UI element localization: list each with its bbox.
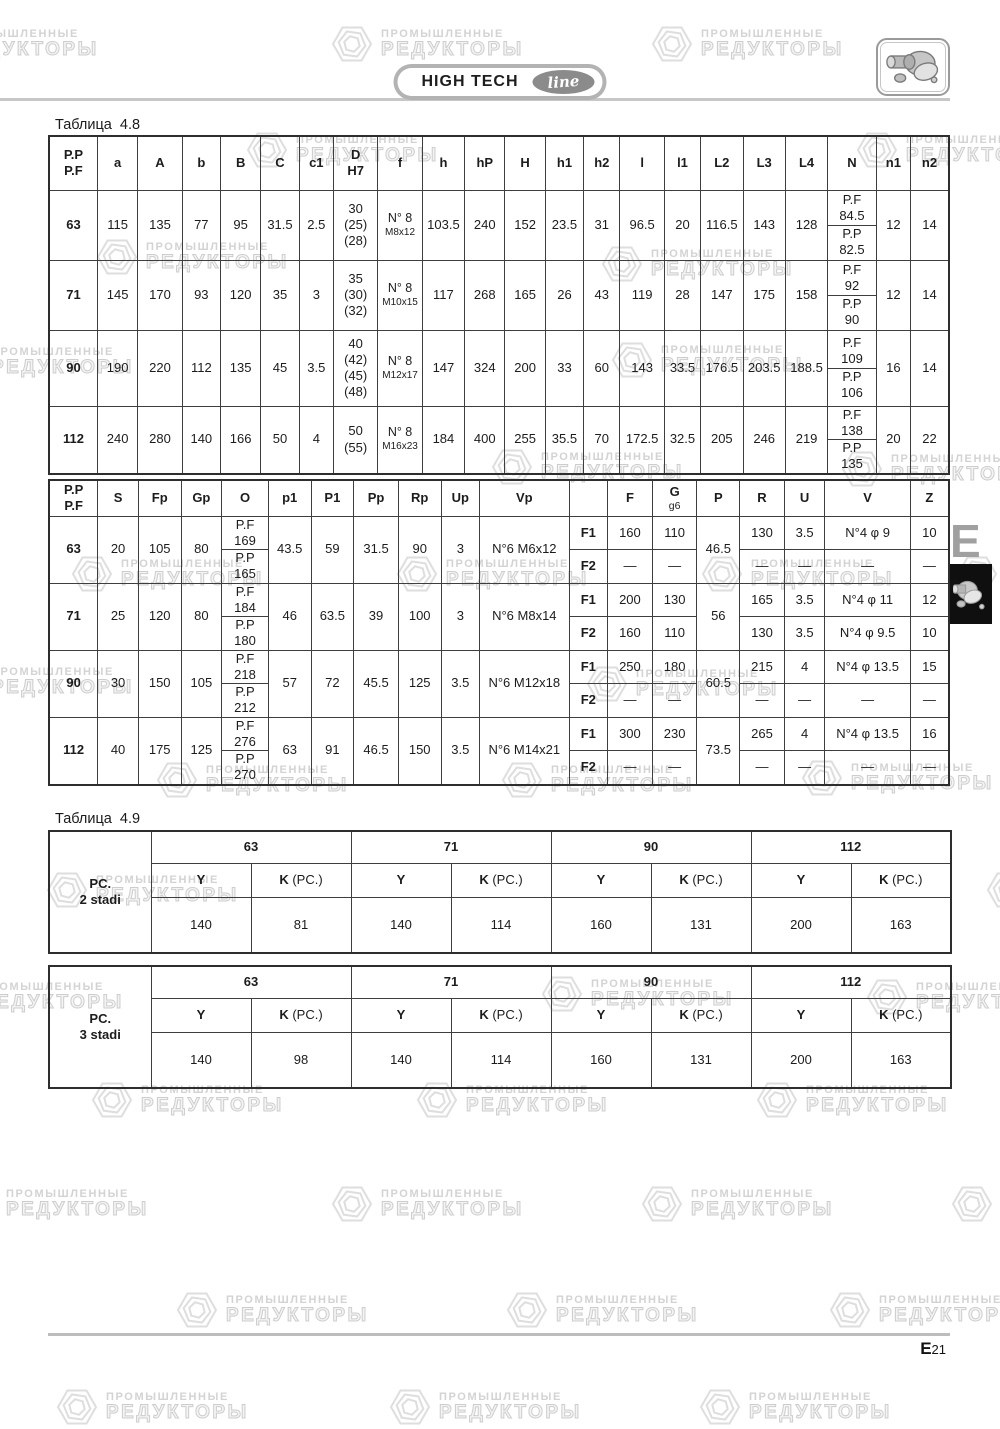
cell-P1: 63.5	[311, 583, 354, 650]
side-tab-letter: E	[950, 518, 981, 564]
stacked-top: P.F 138	[828, 407, 875, 441]
cell-L3: 143	[743, 190, 785, 260]
cell-P: 56	[697, 583, 740, 650]
column-header: R	[740, 480, 785, 516]
stacked-bottom: P.P 212	[222, 684, 268, 717]
cell-B: 135	[220, 330, 260, 406]
cell-R: —	[740, 751, 785, 785]
value-y: 140	[151, 1032, 251, 1088]
size-header-row: PC. 3 stadi637190112	[49, 966, 951, 998]
table-row-f1: 632010580P.F 169P.P 16543.55931.5903N°6 …	[49, 516, 949, 550]
cell-V: N°4 φ 13.5	[825, 650, 910, 684]
cell-l1: 28	[664, 260, 700, 330]
cell-Up: 3	[441, 583, 480, 650]
cell-L2: 205	[701, 406, 743, 474]
size-cell: 71	[49, 260, 97, 330]
k-note: (PC.)	[292, 872, 322, 887]
col-header-y: Y	[151, 998, 251, 1032]
column-header: N	[828, 136, 876, 190]
cell-n1: 16	[876, 330, 910, 406]
cell-Z: 15	[910, 650, 949, 684]
table-row: 711451709312035335 (30) (32)N° 8M10x1511…	[49, 260, 949, 330]
f-sub-value: M8x12	[380, 227, 419, 240]
cell-Pp: 39	[354, 583, 399, 650]
cell-P1: 91	[311, 717, 354, 785]
f-sub-value: M10x15	[380, 297, 419, 310]
cell-f: N° 8M10x15	[378, 260, 422, 330]
f-main-value: N° 8	[380, 211, 419, 227]
yk-header-row: YK (PC.)YK (PC.)YK (PC.)YK (PC.)	[49, 998, 951, 1032]
cell-Pp: 45.5	[354, 650, 399, 717]
k-label: K	[279, 1007, 288, 1022]
cell-n2: 14	[910, 260, 949, 330]
k-label: K	[879, 1007, 888, 1022]
cell-G: 180	[652, 650, 697, 684]
cell-h: 184	[422, 406, 464, 474]
k-note: (PC.)	[492, 872, 522, 887]
f1-label: F1	[569, 650, 608, 684]
cell-O: P.F 218P.P 212	[222, 650, 269, 717]
cell-B: 120	[220, 260, 260, 330]
cell-R: —	[740, 550, 785, 584]
column-header-G: Gg6	[652, 480, 697, 516]
cell-h1: 35.5	[545, 406, 583, 474]
cell-G: —	[652, 684, 697, 718]
cell-Gp: 80	[181, 516, 222, 583]
cell-Pp: 31.5	[354, 516, 399, 583]
cell-F: —	[608, 550, 653, 584]
f-sub-value: M16x23	[380, 441, 419, 454]
f-main-value: N° 8	[380, 354, 419, 370]
col-header-k: K (PC.)	[451, 998, 551, 1032]
size-header: 90	[551, 831, 751, 863]
size-cell: 63	[49, 516, 98, 583]
cell-R: 130	[740, 516, 785, 550]
cell-F: —	[608, 751, 653, 785]
value-y: 140	[151, 897, 251, 953]
table-row-f1: 11240175125P.F 276P.P 270639146.51503.5N…	[49, 717, 949, 751]
stadi-label: PC. 3 stadi	[49, 966, 151, 1088]
cell-b: 77	[182, 190, 220, 260]
stacked-top: P.F 184	[222, 584, 268, 618]
brand-line-badge: line	[531, 68, 597, 96]
cell-P: 60.5	[697, 650, 740, 717]
value-y: 140	[351, 897, 451, 953]
value-k: 131	[651, 1032, 751, 1088]
side-gearbox-box	[950, 564, 992, 624]
cell-L4: 188.5	[785, 330, 827, 406]
table-row-f1: 9030150105P.F 218P.P 212577245.51253.5N°…	[49, 650, 949, 684]
column-header: p1	[268, 480, 311, 516]
values-row: 14098140114160131200163	[49, 1032, 951, 1088]
page-number: E21	[0, 1339, 946, 1359]
f1-label: F1	[569, 516, 608, 550]
column-header: L3	[743, 136, 785, 190]
col-header-y: Y	[351, 998, 451, 1032]
cell-n2: 14	[910, 190, 949, 260]
cell-G: 110	[652, 617, 697, 651]
column-header: O	[222, 480, 269, 516]
brand-script: line	[547, 72, 580, 92]
column-header: h2	[584, 136, 620, 190]
cell-H: 200	[505, 330, 545, 406]
size-cell: 90	[49, 650, 98, 717]
cell-N: P.F 109P.P 106	[828, 330, 876, 406]
table-4-8-label: Таблица 4.8	[55, 117, 140, 133]
cell-F: —	[608, 684, 653, 718]
table-4-8-part2: P.P P.FSFpGpOp1P1PpRpUpVpFGg6PRUVZ632010…	[48, 479, 950, 786]
hightech-line-logo: HIGH TECH line	[394, 64, 607, 100]
col-header-y: Y	[751, 863, 851, 897]
column-header: P	[697, 480, 740, 516]
size-header: 71	[351, 831, 551, 863]
column-header: a	[97, 136, 137, 190]
f-main-value: N° 8	[380, 281, 419, 297]
cell-U: 3.5	[784, 516, 825, 550]
cell-D: 35 (30) (32)	[333, 260, 377, 330]
cell-D: 40 (42) (45) (48)	[333, 330, 377, 406]
cell-h2: 70	[584, 406, 620, 474]
cell-G: —	[652, 751, 697, 785]
cell-L2: 147	[701, 260, 743, 330]
cell-L3: 203.5	[743, 330, 785, 406]
k-label: K	[479, 1007, 488, 1022]
cell-U: —	[784, 751, 825, 785]
column-header: hP	[465, 136, 505, 190]
cell-hP: 268	[465, 260, 505, 330]
cell-U: 3.5	[784, 617, 825, 651]
cell-n2: 22	[910, 406, 949, 474]
cell-S: 20	[98, 516, 139, 583]
cell-c1: 3	[299, 260, 333, 330]
cell-U: —	[784, 684, 825, 718]
g-sub-label: g6	[655, 500, 695, 513]
cell-L2: 116.5	[701, 190, 743, 260]
corner-gearbox-box	[876, 38, 950, 96]
cell-Up: 3.5	[441, 717, 480, 785]
cell-Fp: 105	[138, 516, 181, 583]
size-header: 63	[151, 966, 351, 998]
cell-V: —	[825, 550, 910, 584]
cell-a: 240	[97, 406, 137, 474]
corner-gearbox-inner	[880, 42, 946, 92]
cell-S: 25	[98, 583, 139, 650]
stacked-values: P.F 169P.P 165	[222, 517, 268, 583]
cell-p1: 43.5	[268, 516, 311, 583]
column-header: Rp	[398, 480, 441, 516]
column-header: L2	[701, 136, 743, 190]
cell-U: —	[784, 550, 825, 584]
column-header: l1	[664, 136, 700, 190]
value-y: 200	[751, 1032, 851, 1088]
cell-a: 115	[97, 190, 137, 260]
cell-Z: 16	[910, 717, 949, 751]
cell-f: N° 8M16x23	[378, 406, 422, 474]
column-header: P1	[311, 480, 354, 516]
col-header-k: K (PC.)	[651, 998, 751, 1032]
column-header: U	[784, 480, 825, 516]
cell-h1: 26	[545, 260, 583, 330]
cell-O: P.F 276P.P 270	[222, 717, 269, 785]
value-y: 160	[551, 1032, 651, 1088]
cell-S: 40	[98, 717, 139, 785]
cell-hP: 324	[465, 330, 505, 406]
gearbox-icon	[883, 45, 943, 89]
k-note: (PC.)	[692, 1007, 722, 1022]
column-header: Fp	[138, 480, 181, 516]
cell-h: 147	[422, 330, 464, 406]
cell-hP: 400	[465, 406, 505, 474]
value-k: 98	[251, 1032, 351, 1088]
value-y: 200	[751, 897, 851, 953]
cell-B: 95	[220, 190, 260, 260]
value-k: 114	[451, 1032, 551, 1088]
column-header: L4	[785, 136, 827, 190]
cell-Fp: 175	[138, 717, 181, 785]
cell-Gp: 105	[181, 650, 222, 717]
page-letter: E	[920, 1339, 931, 1358]
cell-P1: 59	[311, 516, 354, 583]
cell-N: P.F 84.5P.P 82.5	[828, 190, 876, 260]
cell-U: 4	[784, 717, 825, 751]
cell-n1: 12	[876, 260, 910, 330]
cell-h2: 43	[584, 260, 620, 330]
cell-V: N°4 φ 11	[825, 583, 910, 617]
cell-f: N° 8M12x17	[378, 330, 422, 406]
cell-A: 135	[138, 190, 182, 260]
cell-A: 280	[138, 406, 182, 474]
size-header: 71	[351, 966, 551, 998]
cell-Gp: 80	[181, 583, 222, 650]
cell-Vp: N°6 M8x14	[480, 583, 569, 650]
cell-Z: —	[910, 684, 949, 718]
cell-F: 300	[608, 717, 653, 751]
f2-label: F2	[569, 550, 608, 584]
page-content: HIGH TECH line Таблица 4.8 P.P P.FaAbBCc…	[0, 0, 1000, 1414]
stacked-bottom: P.P 90	[828, 296, 875, 329]
size-cell: 112	[49, 717, 98, 785]
cell-c1: 3.5	[299, 330, 333, 406]
cell-f: N° 8M8x12	[378, 190, 422, 260]
cell-Gp: 125	[181, 717, 222, 785]
cell-U: 3.5	[784, 583, 825, 617]
column-header: f	[378, 136, 422, 190]
values-row: 14081140114160131200163	[49, 897, 951, 953]
cell-R: 165	[740, 583, 785, 617]
g-main: G	[655, 484, 695, 500]
column-header: D H7	[333, 136, 377, 190]
k-note: (PC.)	[492, 1007, 522, 1022]
cell-Fp: 120	[138, 583, 181, 650]
cell-Rp: 90	[398, 516, 441, 583]
size-header: 63	[151, 831, 351, 863]
k-label: K	[879, 872, 888, 887]
cell-C: 45	[261, 330, 299, 406]
column-header: h	[422, 136, 464, 190]
cell-l: 96.5	[620, 190, 664, 260]
page-num: 21	[932, 1342, 946, 1357]
table-row: 11224028014016650450 (55)N° 8M16x2318440…	[49, 406, 949, 474]
k-label: K	[479, 872, 488, 887]
value-k: 163	[851, 897, 951, 953]
table-4-9-3stadi: PC. 3 stadi637190112YK (PC.)YK (PC.)YK (…	[48, 965, 952, 1089]
cell-S: 30	[98, 650, 139, 717]
cell-c1: 4	[299, 406, 333, 474]
column-header: Gp	[181, 480, 222, 516]
column-header: A	[138, 136, 182, 190]
col-header-k: K (PC.)	[851, 863, 951, 897]
cell-P: 46.5	[697, 516, 740, 583]
column-header: Up	[441, 480, 480, 516]
value-k: 114	[451, 897, 551, 953]
cell-c1: 2.5	[299, 190, 333, 260]
column-header: V	[825, 480, 910, 516]
table-row: 90190220112135453.540 (42) (45) (48)N° 8…	[49, 330, 949, 406]
cell-l: 143	[620, 330, 664, 406]
cell-b: 112	[182, 330, 220, 406]
stacked-bottom: P.P 270	[222, 751, 268, 784]
cell-V: N°4 φ 13.5	[825, 717, 910, 751]
f2-label: F2	[569, 617, 608, 651]
column-header: h1	[545, 136, 583, 190]
f-sub-value: M12x17	[380, 370, 419, 383]
column-header: l	[620, 136, 664, 190]
cell-Up: 3	[441, 516, 480, 583]
col-header-k: K (PC.)	[851, 998, 951, 1032]
cell-n2: 14	[910, 330, 949, 406]
cell-R: 130	[740, 617, 785, 651]
cell-R: 215	[740, 650, 785, 684]
brand-title: HIGH TECH	[422, 73, 519, 91]
value-k: 81	[251, 897, 351, 953]
column-header	[569, 480, 608, 516]
cell-a: 190	[97, 330, 137, 406]
size-cell: 90	[49, 330, 97, 406]
table-4-8-header-row: P.P P.FaAbBCc1D H7fhhPHh1h2ll1L2L3L4Nn1n…	[49, 136, 949, 190]
cell-Pp: 46.5	[354, 717, 399, 785]
cell-l: 119	[620, 260, 664, 330]
cell-O: P.F 184P.P 180	[222, 583, 269, 650]
size-header: 112	[751, 966, 951, 998]
cell-h2: 31	[584, 190, 620, 260]
stacked-top: P.F 276	[222, 718, 268, 752]
value-k: 163	[851, 1032, 951, 1088]
stacked-top: P.F 169	[222, 517, 268, 551]
cell-F: 160	[608, 516, 653, 550]
cell-h: 103.5	[422, 190, 464, 260]
col-header-y: Y	[551, 863, 651, 897]
f2-label: F2	[569, 684, 608, 718]
cell-p1: 46	[268, 583, 311, 650]
size-header-row: PC. 2 stadi637190112	[49, 831, 951, 863]
col-header-k: K (PC.)	[451, 863, 551, 897]
size-cell: 63	[49, 190, 97, 260]
stacked-top: P.F 92	[828, 262, 875, 296]
cell-Z: 10	[910, 516, 949, 550]
cell-L3: 175	[743, 260, 785, 330]
column-header: P.P P.F	[49, 480, 98, 516]
col-header-y: Y	[151, 863, 251, 897]
value-k: 131	[651, 897, 751, 953]
table-row: 63115135779531.52.530 (25) (28)N° 8M8x12…	[49, 190, 949, 260]
size-cell: 112	[49, 406, 97, 474]
k-label: K	[679, 1007, 688, 1022]
stadi-label: PC. 2 stadi	[49, 831, 151, 953]
cell-N: P.F 92P.P 90	[828, 260, 876, 330]
cell-H: 165	[505, 260, 545, 330]
cell-h2: 60	[584, 330, 620, 406]
cell-Rp: 150	[398, 717, 441, 785]
gearbox-icon-dark	[953, 574, 989, 614]
cell-G: 110	[652, 516, 697, 550]
f-main-value: N° 8	[380, 425, 419, 441]
stacked-bottom: P.P 135	[828, 440, 875, 473]
cell-L4: 158	[785, 260, 827, 330]
f1-label: F1	[569, 717, 608, 751]
yk-header-row: YK (PC.)YK (PC.)YK (PC.)YK (PC.)	[49, 863, 951, 897]
cell-h1: 33	[545, 330, 583, 406]
cell-Vp: N°6 M6x12	[480, 516, 569, 583]
cell-U: 4	[784, 650, 825, 684]
stacked-bottom: P.P 180	[222, 617, 268, 650]
size-header: 112	[751, 831, 951, 863]
column-header: Pp	[354, 480, 399, 516]
col-header-y: Y	[551, 998, 651, 1032]
cell-p1: 63	[268, 717, 311, 785]
stacked-values: P.F 276P.P 270	[222, 718, 268, 784]
cell-V: N°4 φ 9	[825, 516, 910, 550]
cell-A: 170	[138, 260, 182, 330]
cell-R: —	[740, 684, 785, 718]
cell-Vp: N°6 M14x21	[480, 717, 569, 785]
cell-G: —	[652, 550, 697, 584]
cell-Rp: 100	[398, 583, 441, 650]
col-header-k: K (PC.)	[251, 863, 351, 897]
cell-Z: 12	[910, 583, 949, 617]
footer-rule	[48, 1333, 950, 1336]
cell-Up: 3.5	[441, 650, 480, 717]
cell-C: 35	[261, 260, 299, 330]
cell-V: —	[825, 751, 910, 785]
cell-F: 200	[608, 583, 653, 617]
size-header: 90	[551, 966, 751, 998]
cell-Z: —	[910, 751, 949, 785]
cell-V: —	[825, 684, 910, 718]
cell-Z: —	[910, 550, 949, 584]
col-header-k: K (PC.)	[251, 998, 351, 1032]
k-note: (PC.)	[292, 1007, 322, 1022]
column-header: c1	[299, 136, 333, 190]
cell-l1: 32.5	[664, 406, 700, 474]
cell-F: 250	[608, 650, 653, 684]
stacked-values: P.F 84.5P.P 82.5	[828, 192, 875, 258]
column-header: P.P P.F	[49, 136, 97, 190]
cell-L4: 219	[785, 406, 827, 474]
table-4-8: P.P P.FaAbBCc1D H7fhhPHh1h2ll1L2L3L4Nn1n…	[48, 135, 950, 475]
cell-P: 73.5	[697, 717, 740, 785]
cell-F: 160	[608, 617, 653, 651]
cell-h1: 23.5	[545, 190, 583, 260]
cell-h: 117	[422, 260, 464, 330]
cell-H: 255	[505, 406, 545, 474]
stacked-bottom: P.P 82.5	[828, 226, 875, 259]
cell-Rp: 125	[398, 650, 441, 717]
cell-L2: 176.5	[701, 330, 743, 406]
k-note: (PC.)	[692, 872, 722, 887]
cell-C: 50	[261, 406, 299, 474]
size-cell: 71	[49, 583, 98, 650]
k-label: K	[279, 872, 288, 887]
